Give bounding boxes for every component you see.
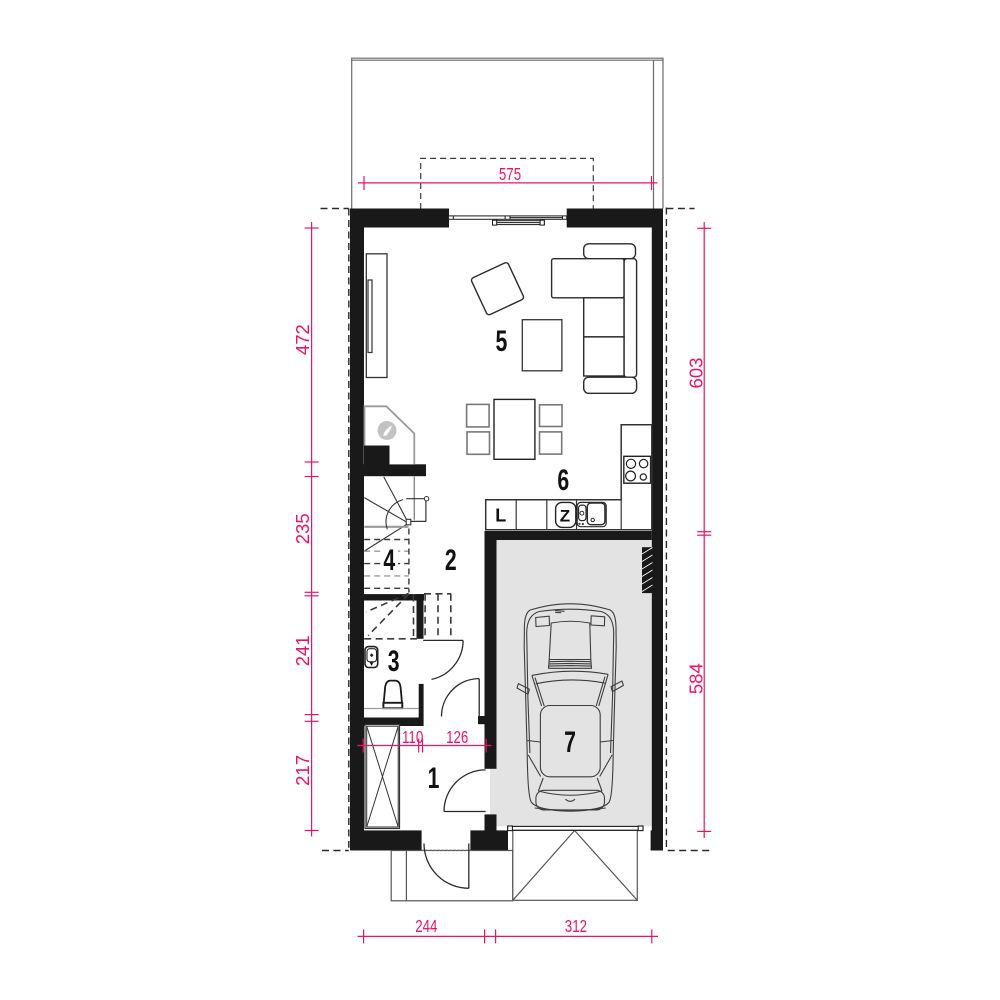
svg-text:126: 126	[446, 728, 468, 747]
svg-text:1: 1	[428, 763, 440, 795]
svg-text:4: 4	[383, 545, 395, 577]
svg-text:217: 217	[292, 755, 313, 786]
svg-text:244: 244	[415, 917, 437, 936]
svg-text:2: 2	[445, 545, 457, 577]
svg-text:603: 603	[686, 358, 707, 389]
svg-text:235: 235	[292, 513, 313, 544]
svg-text:3: 3	[388, 646, 400, 678]
svg-text:472: 472	[292, 324, 313, 355]
svg-text:L: L	[495, 506, 506, 526]
svg-text:6: 6	[557, 465, 569, 497]
svg-text:584: 584	[686, 663, 707, 694]
svg-text:7: 7	[564, 727, 576, 759]
svg-text:575: 575	[499, 165, 521, 184]
svg-text:110: 110	[402, 728, 423, 747]
svg-text:241: 241	[292, 635, 313, 666]
svg-text:5: 5	[495, 326, 507, 358]
svg-text:312: 312	[565, 917, 587, 936]
svg-text:Z: Z	[560, 507, 570, 526]
